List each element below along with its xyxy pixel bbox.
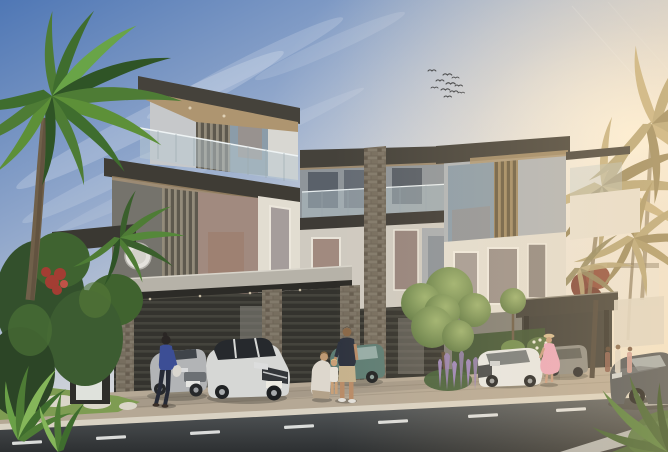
sunset-wash: [334, 0, 668, 452]
property-render: [0, 0, 668, 452]
